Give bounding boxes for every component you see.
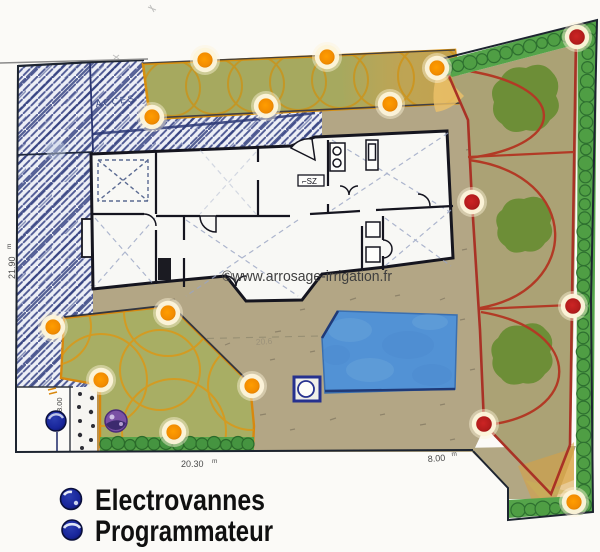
svg-text:m: m (6, 244, 13, 249)
svg-text:21.90: 21.90 (7, 256, 17, 279)
svg-text:m: m (212, 458, 217, 465)
svg-text:8.00: 8.00 (55, 397, 64, 412)
svg-text:20.30: 20.30 (181, 459, 204, 469)
svg-text:8.00: 8.00 (427, 453, 445, 464)
svg-text:m: m (451, 451, 457, 458)
svg-text:20.6: 20.6 (255, 336, 272, 347)
svg-text:Electrovannes: Electrovannes (95, 484, 265, 517)
svg-text:©www.arrosage-irrigation.fr: ©www.arrosage-irrigation.fr (222, 268, 392, 285)
svg-text:Programmateur: Programmateur (95, 515, 273, 548)
svg-text:⌐SZ: ⌐SZ (302, 177, 317, 186)
